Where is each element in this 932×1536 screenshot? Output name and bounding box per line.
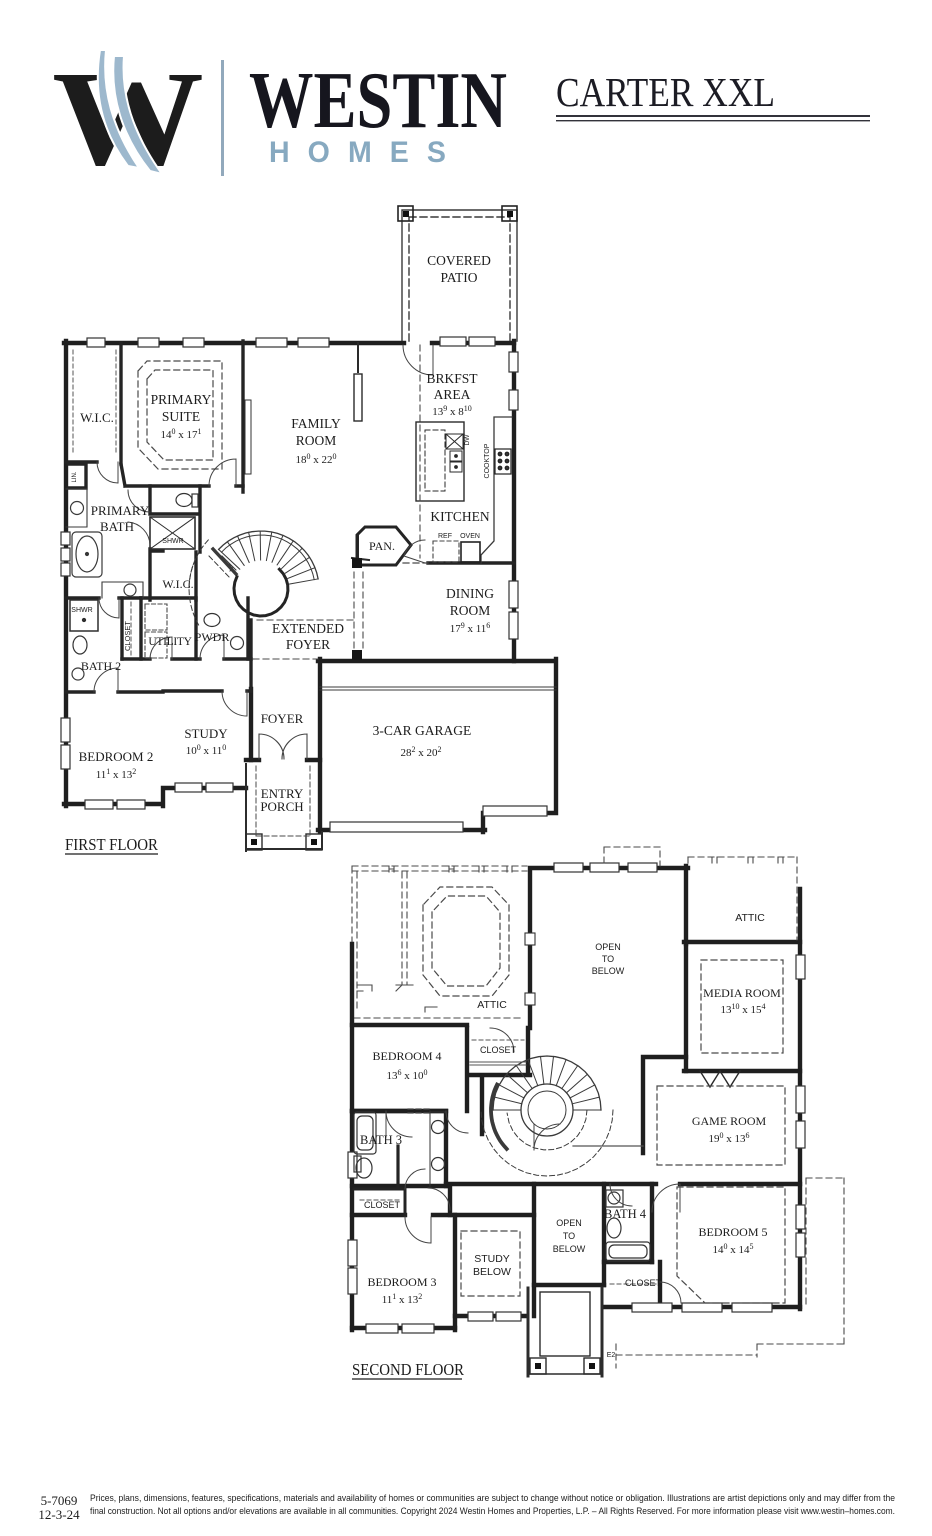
svg-text:SHWR: SHWR xyxy=(162,538,183,545)
svg-text:ROOM: ROOM xyxy=(296,433,337,448)
svg-text:111 x 132: 111 x 132 xyxy=(96,767,137,781)
svg-text:STUDY: STUDY xyxy=(184,726,228,741)
svg-text:CARTER XXL: CARTER XXL xyxy=(556,69,775,115)
svg-text:CLOSET: CLOSET xyxy=(123,621,132,651)
svg-text:PRIMARY: PRIMARY xyxy=(91,503,150,518)
svg-text:PORCH: PORCH xyxy=(260,799,303,814)
svg-text:BEDROOM 5: BEDROOM 5 xyxy=(698,1225,767,1239)
svg-text:OPEN: OPEN xyxy=(595,942,621,952)
svg-text:3-CAR GARAGE: 3-CAR GARAGE xyxy=(373,723,472,738)
svg-text:GAME ROOM: GAME ROOM xyxy=(692,1114,767,1128)
svg-text:CLOSET: CLOSET xyxy=(364,1200,401,1210)
svg-text:140 x 171: 140 x 171 xyxy=(161,427,202,441)
svg-text:SUITE: SUITE xyxy=(162,409,200,424)
svg-text:PATIO: PATIO xyxy=(440,270,477,285)
svg-text:140 x 145: 140 x 145 xyxy=(713,1242,754,1256)
svg-text:ATTIC: ATTIC xyxy=(477,999,507,1011)
svg-text:COOKTOP: COOKTOP xyxy=(484,443,491,478)
svg-text:FIRST FLOOR: FIRST FLOOR xyxy=(65,835,159,854)
svg-text:PRIMARY: PRIMARY xyxy=(151,392,212,407)
svg-text:final construction. Not all o: final construction. Not all options and/… xyxy=(90,1506,895,1516)
svg-text:TO: TO xyxy=(563,1231,575,1241)
svg-text:139 x 810: 139 x 810 xyxy=(432,404,472,418)
svg-text:282 x 202: 282 x 202 xyxy=(401,745,442,759)
svg-text:OPEN: OPEN xyxy=(556,1218,582,1228)
svg-text:FOYER: FOYER xyxy=(261,711,304,726)
svg-text:W.I.C.: W.I.C. xyxy=(162,577,193,591)
svg-text:BELOW: BELOW xyxy=(473,1266,511,1278)
svg-text:100 x 110: 100 x 110 xyxy=(186,743,227,757)
svg-text:BELOW: BELOW xyxy=(592,966,625,976)
svg-text:AREA: AREA xyxy=(434,387,471,402)
svg-text:BEDROOM 3: BEDROOM 3 xyxy=(367,1275,436,1289)
svg-text:WESTIN: WESTIN xyxy=(249,57,507,145)
svg-text:111 x 132: 111 x 132 xyxy=(382,1292,423,1306)
svg-text:KITCHEN: KITCHEN xyxy=(430,509,489,524)
svg-text:BRKFST: BRKFST xyxy=(426,371,478,386)
svg-text:COVERED: COVERED xyxy=(427,253,491,268)
svg-text:HOMES: HOMES xyxy=(269,136,464,169)
svg-text:OVEN: OVEN xyxy=(460,533,480,540)
svg-text:UTILITY: UTILITY xyxy=(148,636,192,648)
svg-text:SECOND FLOOR: SECOND FLOOR xyxy=(352,1360,465,1379)
svg-text:PWDR: PWDR xyxy=(195,630,230,644)
svg-text:STUDY: STUDY xyxy=(474,1253,510,1265)
svg-text:EXTENDED: EXTENDED xyxy=(272,621,344,636)
svg-text:5-7069: 5-7069 xyxy=(41,1493,78,1508)
svg-text:W.I.C.: W.I.C. xyxy=(80,410,114,425)
svg-text:BATH 4: BATH 4 xyxy=(604,1207,647,1221)
svg-text:180 x 220: 180 x 220 xyxy=(296,452,337,466)
svg-text:BEDROOM 2: BEDROOM 2 xyxy=(79,749,154,764)
svg-text:BATH: BATH xyxy=(100,519,134,534)
svg-text:Prices, plans, dimensions, fea: Prices, plans, dimensions, features, spe… xyxy=(90,1493,895,1503)
svg-text:12-3-24: 12-3-24 xyxy=(38,1507,80,1522)
svg-text:179 x 116: 179 x 116 xyxy=(450,621,491,635)
svg-text:BATH 2: BATH 2 xyxy=(81,659,121,673)
svg-text:136 x 100: 136 x 100 xyxy=(387,1068,428,1082)
svg-text:CLOSET: CLOSET xyxy=(480,1045,517,1055)
svg-text:BATH 3: BATH 3 xyxy=(360,1133,402,1147)
svg-text:BEDROOM 4: BEDROOM 4 xyxy=(372,1049,441,1063)
svg-text:TO: TO xyxy=(602,954,614,964)
svg-text:ATTIC: ATTIC xyxy=(735,912,765,924)
svg-text:PAN.: PAN. xyxy=(369,539,395,553)
svg-text:SHWR: SHWR xyxy=(71,607,92,614)
svg-text:ROOM: ROOM xyxy=(450,603,491,618)
svg-text:DW: DW xyxy=(464,434,471,446)
svg-text:1310 x 154: 1310 x 154 xyxy=(721,1002,766,1016)
svg-text:BELOW: BELOW xyxy=(553,1244,586,1254)
svg-text:190 x 136: 190 x 136 xyxy=(709,1131,750,1145)
svg-text:FAMILY: FAMILY xyxy=(291,416,341,431)
svg-text:E2: E2 xyxy=(607,1352,616,1359)
svg-text:CLOSET: CLOSET xyxy=(625,1278,662,1288)
svg-text:REF: REF xyxy=(438,533,452,540)
svg-text:FOYER: FOYER xyxy=(286,637,330,652)
svg-text:LIN.: LIN. xyxy=(72,471,78,482)
svg-text:MEDIA ROOM: MEDIA ROOM xyxy=(703,986,781,1000)
svg-text:DINING: DINING xyxy=(446,586,494,601)
